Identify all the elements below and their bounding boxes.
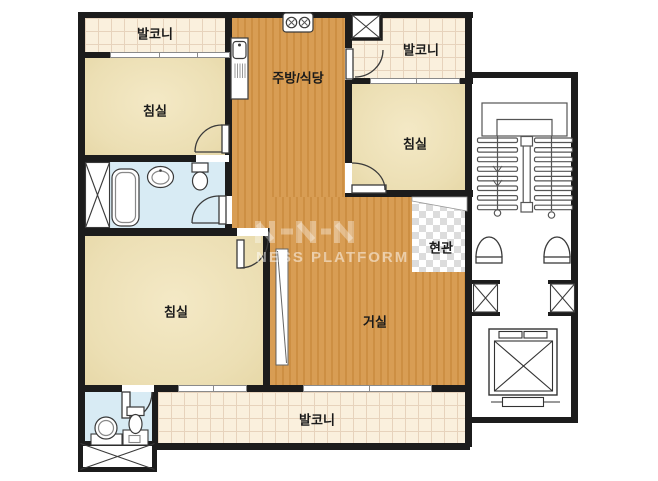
bathtub-icon: [112, 169, 139, 226]
toilet-icon: [192, 163, 208, 190]
duct-x-icon: [471, 280, 500, 316]
room-label-balcony-bottom: 발코니: [299, 410, 335, 429]
toilet-icon: [127, 407, 144, 434]
floor-plan: 발코니 주방/식당 발코니 침실 침실 현관 거실 침실 발코니 NESS PL…: [0, 0, 658, 481]
room-label-bedroom-bottom-left: 침실: [164, 302, 188, 321]
elevator-x-icon: [489, 329, 560, 407]
room-label-balcony-top-left: 발코니: [137, 24, 173, 43]
stove-burner-icon: [283, 13, 313, 32]
room-label-living-room: 거실: [363, 312, 387, 331]
closet-x-icon: [81, 444, 155, 470]
room-label-kitchen-dining: 주방/식당: [272, 68, 323, 87]
room-label-bedroom-top-right: 침실: [403, 134, 427, 153]
room-label-balcony-top-right: 발코니: [403, 40, 439, 59]
duct-x-icon: [351, 14, 381, 39]
room-label-entrance: 현관: [429, 238, 453, 257]
room-label-bedroom-top-left: 침실: [143, 101, 167, 120]
open-door-leaf: [276, 249, 288, 365]
staircase-icon: [478, 103, 573, 218]
duct-x-icon: [548, 280, 577, 316]
washbasin-icon: [95, 417, 117, 439]
entrance-cabinet: [412, 197, 467, 211]
sink-icon: [231, 38, 248, 99]
washbasin-icon: [148, 167, 174, 188]
closet-x-icon: [86, 163, 110, 228]
